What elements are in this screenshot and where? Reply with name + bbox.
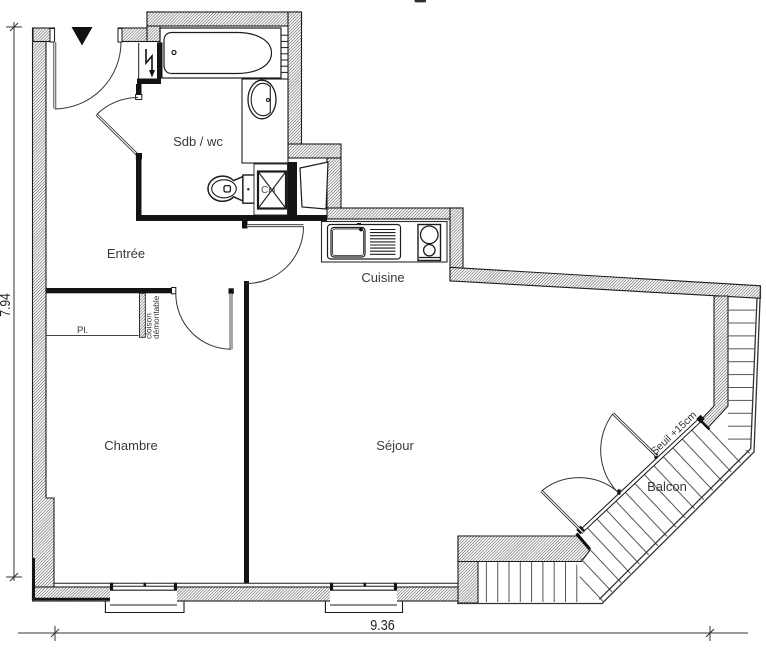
svg-text:CH: CH — [261, 185, 275, 196]
svg-text:Chambre: Chambre — [104, 438, 157, 453]
svg-text:7.94: 7.94 — [0, 293, 14, 317]
svg-text:Sdb / wc: Sdb / wc — [173, 134, 223, 149]
svg-text:Entrée: Entrée — [107, 246, 145, 261]
svg-text:Pl.: Pl. — [77, 325, 88, 336]
svg-text:9.36: 9.36 — [370, 617, 395, 634]
svg-text:Cuisine: Cuisine — [361, 270, 404, 285]
svg-text:Balcon: Balcon — [647, 479, 687, 494]
svg-text:démontable: démontable — [151, 295, 161, 339]
svg-text:Séjour: Séjour — [376, 438, 414, 453]
